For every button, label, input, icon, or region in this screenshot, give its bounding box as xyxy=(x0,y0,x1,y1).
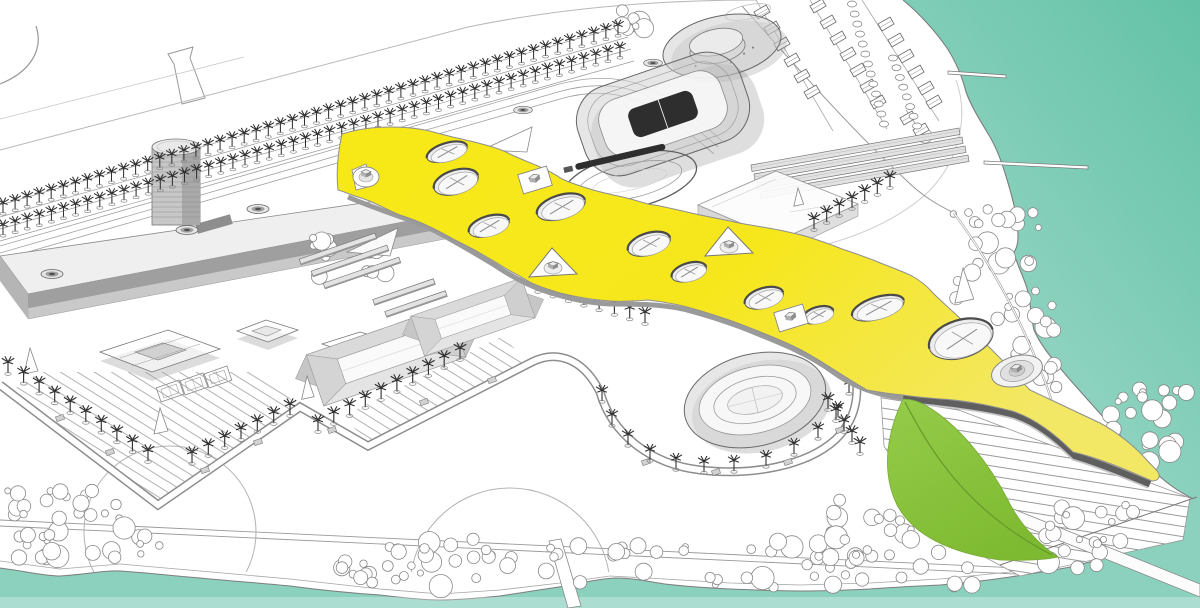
tree xyxy=(391,544,406,559)
tree xyxy=(547,544,555,552)
tree xyxy=(367,577,378,588)
tree xyxy=(573,576,586,589)
tree xyxy=(902,531,920,549)
street-tree xyxy=(877,111,886,117)
street-tree xyxy=(866,71,875,77)
street-tree xyxy=(848,1,857,7)
tree xyxy=(408,562,416,570)
tree xyxy=(444,538,458,552)
tree xyxy=(632,23,639,30)
roof-vent-donut xyxy=(176,226,198,235)
tree xyxy=(1051,381,1062,392)
tree xyxy=(1100,536,1106,542)
tree xyxy=(1178,385,1194,401)
tree xyxy=(947,576,962,591)
tree xyxy=(1095,506,1107,518)
tree xyxy=(550,553,559,562)
tree xyxy=(538,563,554,579)
tree xyxy=(965,209,973,217)
tree xyxy=(884,524,897,537)
tree xyxy=(1040,316,1051,327)
tree xyxy=(853,551,860,558)
tree xyxy=(751,566,774,589)
tree xyxy=(679,546,689,556)
tree xyxy=(52,511,66,525)
street-tree xyxy=(874,101,883,107)
tree xyxy=(1102,406,1119,423)
tree xyxy=(109,551,121,563)
street-tree xyxy=(880,121,889,127)
tree xyxy=(1125,407,1136,418)
tree xyxy=(84,509,97,522)
tree xyxy=(974,219,983,228)
tree xyxy=(962,562,974,574)
tree xyxy=(616,5,628,17)
street-tree xyxy=(906,104,915,110)
tree xyxy=(824,576,841,593)
tree xyxy=(360,560,367,567)
tree xyxy=(1048,301,1056,309)
tree xyxy=(1045,521,1054,530)
tree xyxy=(995,248,1015,268)
tree xyxy=(137,541,144,548)
tree xyxy=(1058,545,1070,557)
tree xyxy=(11,550,26,565)
tree xyxy=(1028,208,1038,218)
tree xyxy=(5,488,11,494)
tree xyxy=(1063,512,1070,519)
tree xyxy=(747,545,756,554)
tree xyxy=(855,573,868,586)
tree xyxy=(895,516,904,525)
tree xyxy=(1158,385,1169,396)
tree xyxy=(931,545,945,559)
tree xyxy=(399,572,408,581)
tree xyxy=(73,495,89,511)
tree xyxy=(500,558,516,574)
tree xyxy=(810,572,818,580)
tree xyxy=(44,530,55,541)
tree xyxy=(20,528,35,543)
tree xyxy=(841,571,849,579)
tree xyxy=(635,563,652,580)
tree xyxy=(354,571,368,585)
tree xyxy=(420,544,430,554)
tree xyxy=(1108,519,1115,526)
tree xyxy=(336,562,348,574)
tree xyxy=(1137,392,1147,402)
street-tree xyxy=(861,51,870,57)
tower-top xyxy=(152,139,200,155)
street-tree xyxy=(869,81,878,87)
tree xyxy=(1142,432,1159,449)
street-tree xyxy=(889,55,898,61)
tree xyxy=(1044,361,1057,374)
tree xyxy=(467,533,479,545)
tree xyxy=(822,549,839,566)
shallow-water-band xyxy=(0,597,1200,608)
site-plan-rendering xyxy=(0,0,1200,608)
tree xyxy=(138,551,144,557)
street-tree xyxy=(892,65,901,71)
tree xyxy=(630,538,646,554)
tree xyxy=(863,546,872,555)
street-tree xyxy=(853,21,862,27)
tree xyxy=(40,494,53,507)
tree xyxy=(20,510,28,518)
tree xyxy=(382,561,393,572)
tree xyxy=(964,577,981,594)
roof-vent-donut xyxy=(247,205,269,214)
tree xyxy=(10,486,25,501)
street-tree xyxy=(864,61,873,67)
tree xyxy=(874,514,883,523)
tree xyxy=(1015,291,1031,307)
tree xyxy=(608,544,625,561)
tree xyxy=(310,234,317,241)
street-tree xyxy=(872,91,881,97)
tree xyxy=(570,538,587,555)
tree xyxy=(827,505,842,520)
tree xyxy=(1162,396,1177,411)
tree xyxy=(1113,534,1128,549)
tree xyxy=(1159,441,1181,463)
tree xyxy=(884,509,896,521)
tree xyxy=(1032,287,1040,295)
tree xyxy=(1025,257,1034,266)
tree xyxy=(101,510,108,517)
tree xyxy=(802,560,812,570)
tree xyxy=(1142,400,1163,421)
tree xyxy=(650,546,663,559)
tree xyxy=(770,533,787,550)
street-tree xyxy=(913,123,922,129)
tree xyxy=(1115,399,1121,405)
tree xyxy=(1090,559,1103,572)
masterplan-svg xyxy=(0,0,1200,608)
tree xyxy=(156,542,164,550)
tree xyxy=(991,312,1004,325)
roof-vent-donut xyxy=(514,106,533,114)
tree xyxy=(111,499,121,509)
tree xyxy=(834,494,846,506)
street-tree xyxy=(902,94,911,100)
tree xyxy=(1035,225,1041,231)
tree xyxy=(417,570,423,576)
tree xyxy=(481,545,491,555)
tree xyxy=(1076,536,1082,542)
tree xyxy=(992,213,1005,226)
street-tree xyxy=(856,31,865,37)
street-tree xyxy=(909,113,918,119)
tree xyxy=(85,545,100,560)
street-tree xyxy=(858,41,867,47)
tree xyxy=(1071,561,1085,575)
street-tree xyxy=(899,84,908,90)
tree xyxy=(913,559,928,574)
tree xyxy=(85,484,98,497)
tree xyxy=(705,572,715,582)
tree xyxy=(741,572,753,584)
tree xyxy=(1127,505,1140,518)
roof-vent-donut xyxy=(644,59,663,67)
tree xyxy=(1093,540,1101,548)
tree xyxy=(53,484,68,499)
street-tree xyxy=(895,74,904,80)
tree xyxy=(896,572,907,583)
tree xyxy=(840,535,850,545)
tree xyxy=(885,550,895,560)
tree xyxy=(449,555,462,568)
tree xyxy=(983,205,992,214)
tree xyxy=(815,552,823,560)
tree xyxy=(429,575,452,598)
street-tree xyxy=(850,11,859,17)
roof-vent-donut xyxy=(41,270,63,279)
tree xyxy=(113,517,135,539)
tree xyxy=(467,551,480,564)
tree xyxy=(391,575,400,584)
tree xyxy=(43,542,61,560)
tree xyxy=(472,574,481,583)
